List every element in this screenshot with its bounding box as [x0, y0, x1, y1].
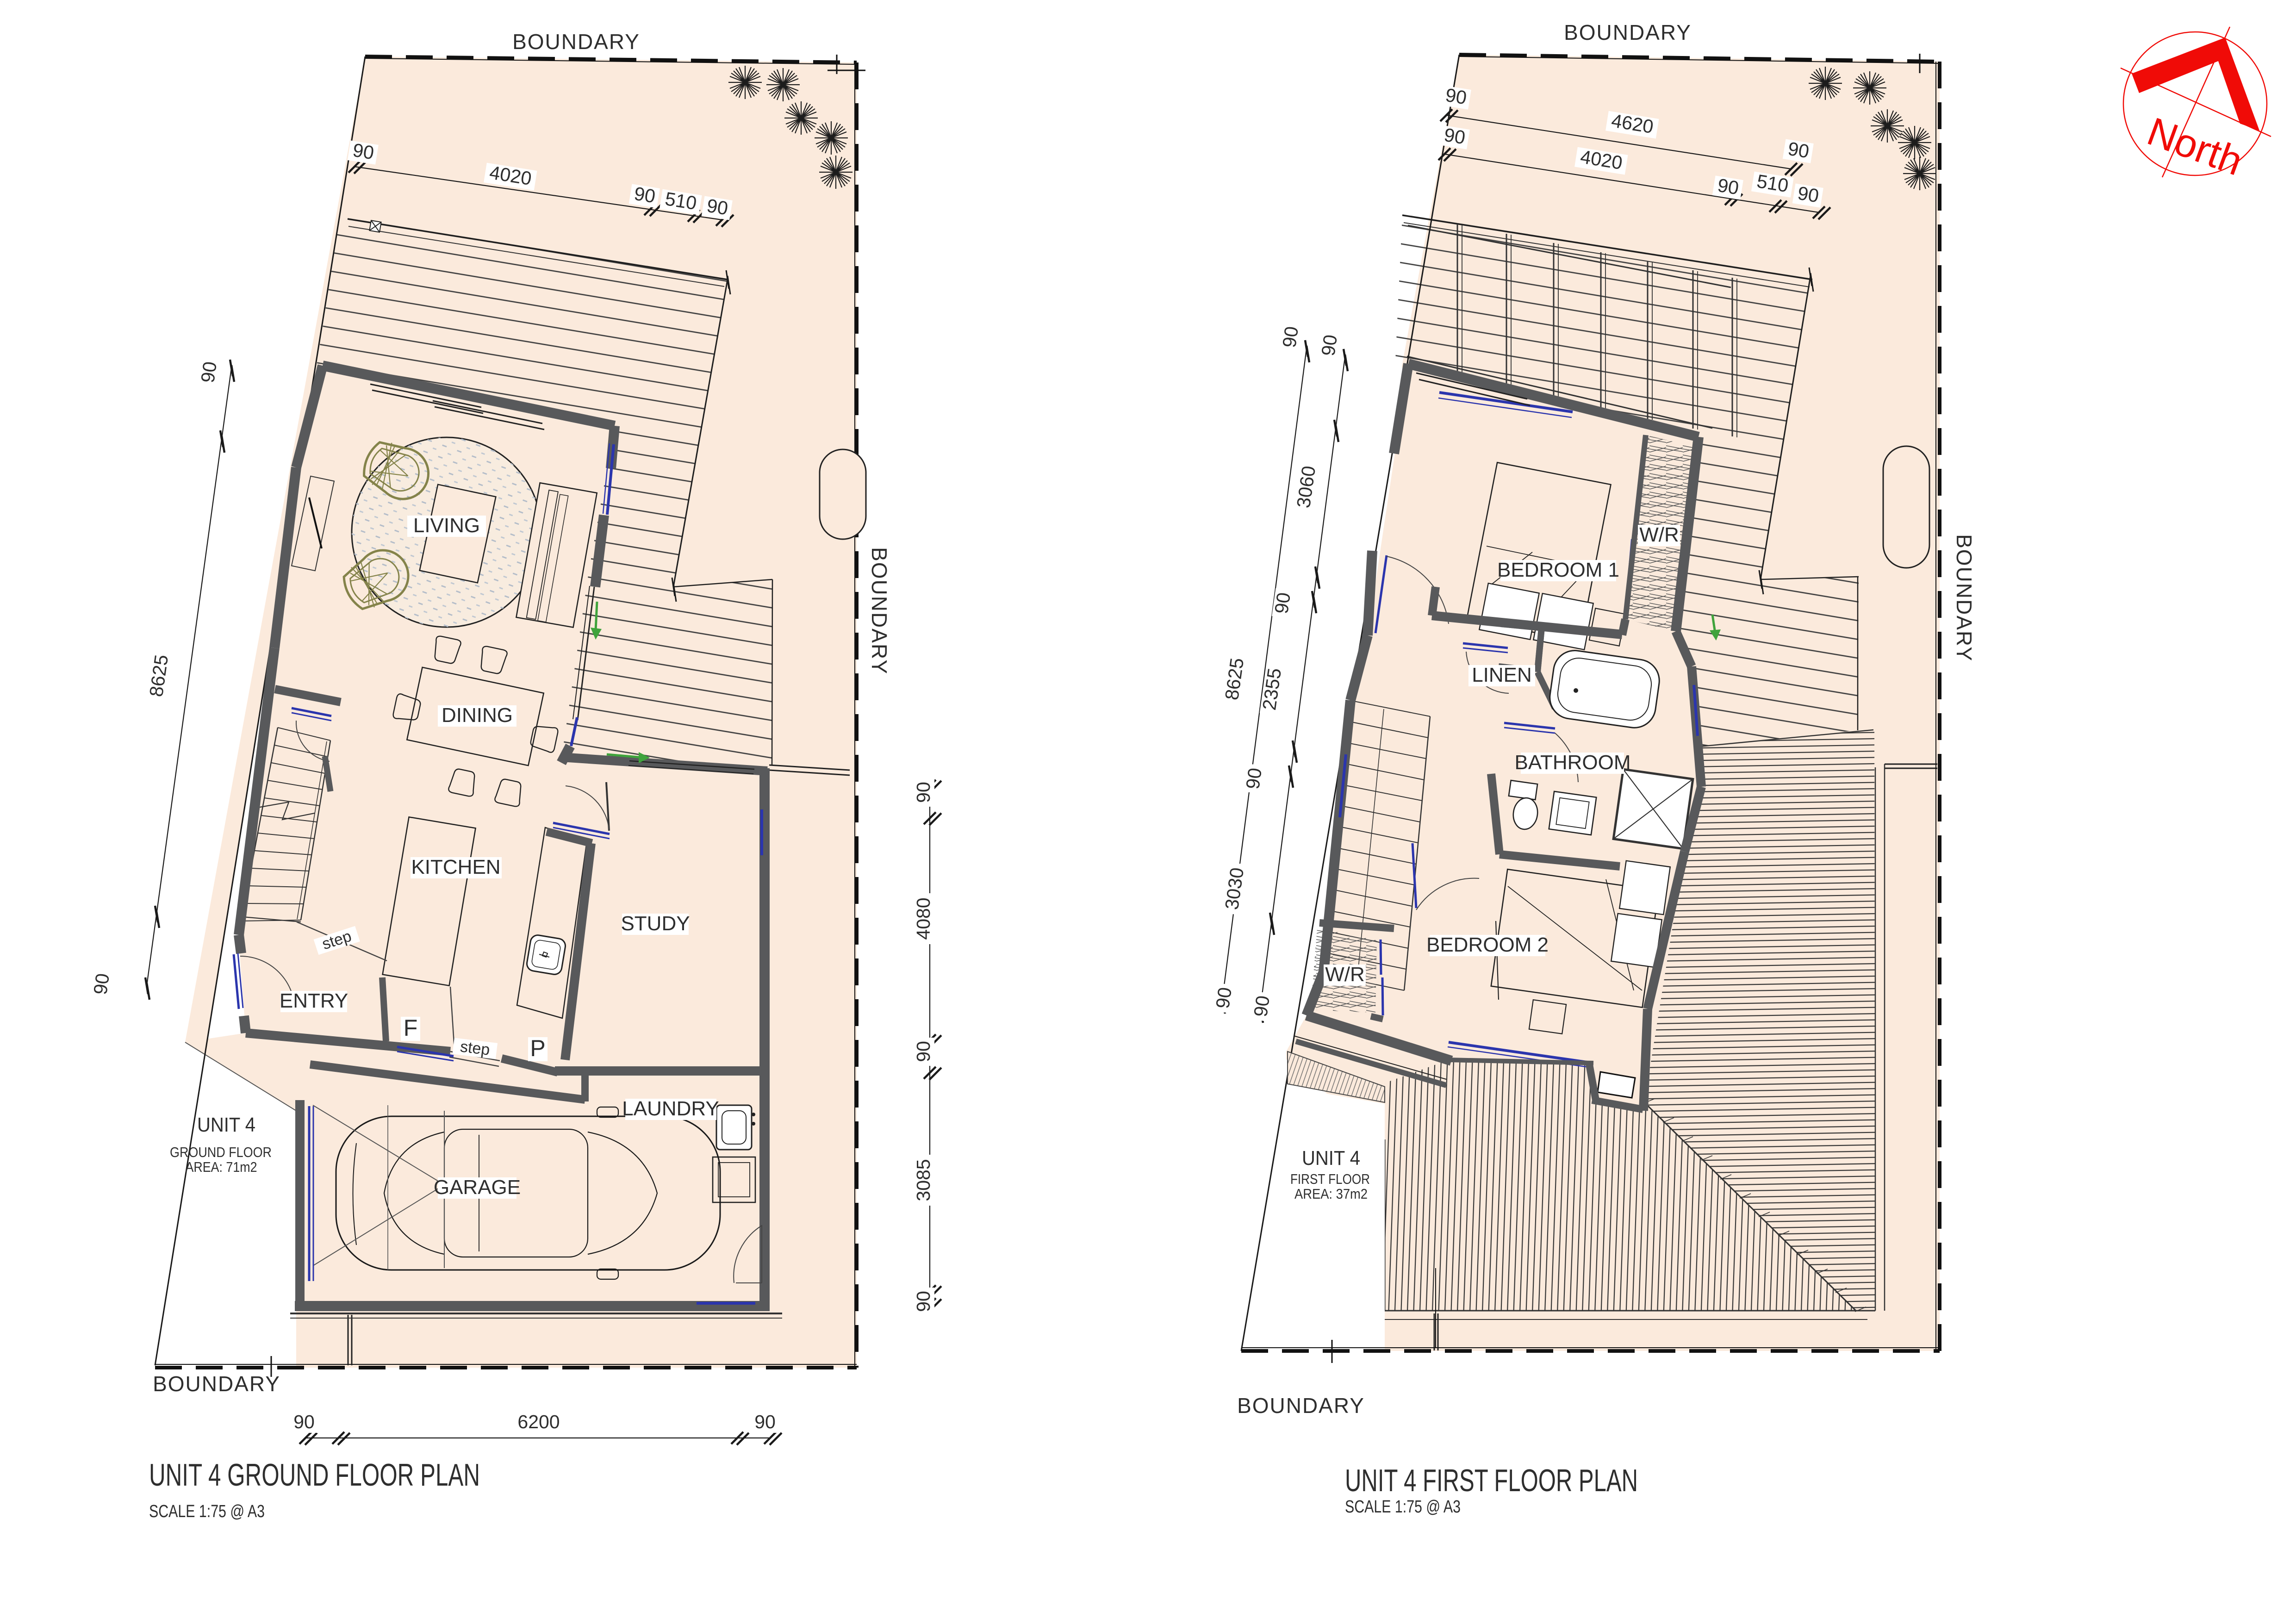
svg-text:90: 90 [1796, 182, 1820, 207]
svg-text:BEDROOM 2: BEDROOM 2 [1426, 933, 1549, 956]
svg-text:W/R: W/R [1639, 523, 1679, 546]
svg-text:3085: 3085 [913, 1159, 934, 1201]
svg-text:90: 90 [913, 1291, 934, 1312]
svg-text:90: 90 [1242, 766, 1266, 790]
svg-text:90: 90 [1444, 84, 1468, 109]
svg-text:W/R: W/R [1325, 963, 1365, 986]
svg-text:90: 90 [913, 1041, 934, 1062]
svg-text:UNIT 4 GROUND FLOOR PLAN: UNIT 4 GROUND FLOOR PLAN [149, 1457, 480, 1493]
svg-text:KITCHEN: KITCHEN [411, 856, 500, 878]
svg-text:90: 90 [1212, 986, 1236, 1010]
svg-text:BOUNDARY: BOUNDARY [1564, 20, 1692, 44]
svg-text:90: 90 [1443, 124, 1467, 149]
svg-text:P: P [530, 1035, 545, 1061]
svg-text:90: 90 [1278, 325, 1302, 349]
svg-text:ENTRY: ENTRY [280, 989, 348, 1012]
svg-text:90: 90 [1716, 174, 1740, 199]
svg-text:90: 90 [633, 183, 657, 207]
svg-text:FIRST FLOOR: FIRST FLOOR [1290, 1171, 1370, 1187]
svg-text:90: 90 [1270, 591, 1294, 615]
svg-text:LINEN: LINEN [1472, 664, 1532, 686]
svg-text:90: 90 [754, 1411, 776, 1432]
svg-text:BOUNDARY: BOUNDARY [512, 30, 640, 54]
svg-text:LAUNDRY: LAUNDRY [622, 1097, 719, 1120]
svg-text:GARAGE: GARAGE [434, 1176, 521, 1199]
svg-text:step: step [459, 1038, 491, 1059]
svg-text:LIVING: LIVING [413, 514, 480, 537]
svg-text:90: 90 [1250, 994, 1274, 1018]
svg-text:AREA: 37m2: AREA: 37m2 [1294, 1186, 1368, 1202]
svg-text:BATHROOM: BATHROOM [1515, 751, 1631, 774]
svg-text:90: 90 [351, 139, 375, 164]
svg-text:90: 90 [1786, 138, 1811, 162]
svg-text:UNIT 4: UNIT 4 [197, 1114, 255, 1136]
svg-text:BOUNDARY: BOUNDARY [1237, 1394, 1365, 1418]
svg-text:AREA: 71m2: AREA: 71m2 [186, 1159, 257, 1175]
svg-text:BOUNDARY: BOUNDARY [1952, 534, 1976, 662]
svg-text:6200: 6200 [517, 1411, 560, 1432]
svg-text:GROUND FLOOR: GROUND FLOOR [170, 1144, 272, 1160]
svg-text:4080: 4080 [913, 897, 934, 940]
svg-text:SCALE 1:75 @ A3: SCALE 1:75 @ A3 [149, 1502, 265, 1521]
svg-text:90: 90 [913, 782, 934, 803]
svg-text:UNIT 4: UNIT 4 [1302, 1147, 1360, 1170]
svg-text:90: 90 [293, 1411, 315, 1432]
svg-text:STUDY: STUDY [621, 912, 690, 935]
svg-text:BOUNDARY: BOUNDARY [153, 1372, 280, 1396]
svg-text:90: 90 [705, 195, 729, 219]
svg-text:F: F [404, 1015, 418, 1041]
svg-text:BOUNDARY: BOUNDARY [867, 547, 891, 675]
svg-text:BEDROOM 1: BEDROOM 1 [1497, 559, 1619, 581]
svg-text:UNIT 4 FIRST FLOOR PLAN: UNIT 4 FIRST FLOOR PLAN [1345, 1463, 1638, 1498]
svg-text:DINING: DINING [442, 704, 513, 727]
svg-text:90: 90 [197, 360, 221, 384]
svg-text:90: 90 [1317, 333, 1341, 357]
svg-text:SCALE 1:75 @ A3: SCALE 1:75 @ A3 [1345, 1497, 1461, 1517]
svg-text:90: 90 [89, 972, 113, 996]
